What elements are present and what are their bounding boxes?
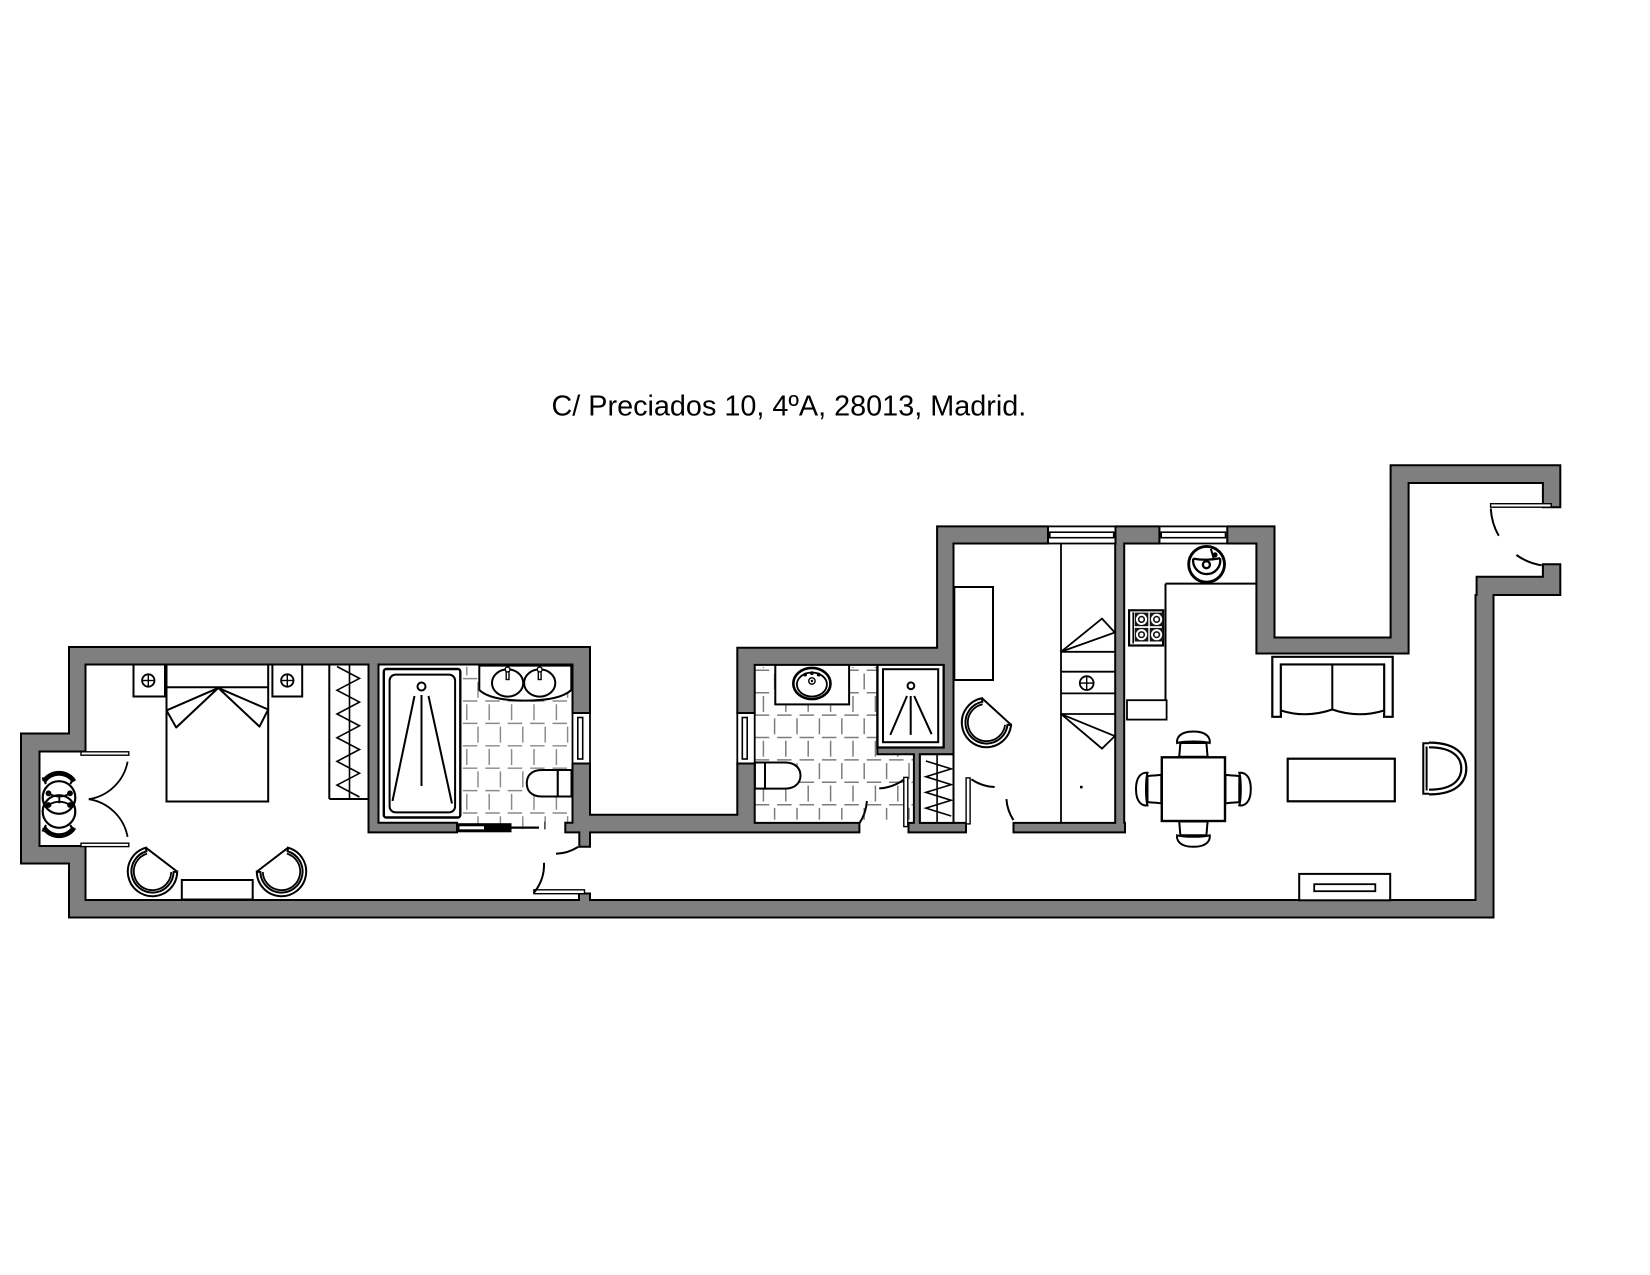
svg-text:C/ Preciados 10, 4ºA, 28013, M: C/ Preciados 10, 4ºA, 28013, Madrid. — [552, 391, 1027, 423]
